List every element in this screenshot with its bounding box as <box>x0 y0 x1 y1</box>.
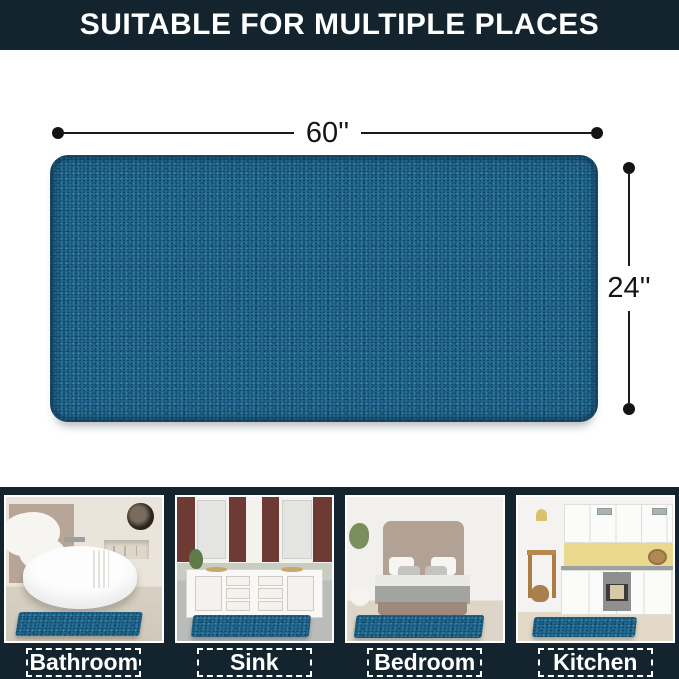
cabinet-drawer <box>258 576 282 586</box>
vanity-cabinet <box>186 569 323 618</box>
cabinet-drawer <box>226 588 250 598</box>
width-dimension: 60'' <box>52 115 603 151</box>
blanket <box>375 586 470 603</box>
banner: SUITABLE FOR MULTIPLE PLACES <box>0 0 679 50</box>
gallery-item-bathroom: Bathroom <box>4 495 164 679</box>
cabinet-drawer <box>258 601 282 611</box>
bathroom-photo <box>4 495 164 643</box>
dimension-line <box>628 311 630 403</box>
glass-cabinet-door <box>597 508 612 515</box>
cabinet-door <box>195 576 222 612</box>
cabinet-drawer <box>226 576 250 586</box>
sink-basin <box>281 567 303 572</box>
table-leg <box>552 555 556 598</box>
bedroom-label: Bedroom <box>367 648 482 677</box>
dimension-endpoint-dot <box>591 127 603 139</box>
rug-dimension-stage: 60'' 24'' <box>0 50 679 487</box>
vanity-mirror <box>282 500 312 559</box>
banner-title: SUITABLE FOR MULTIPLE PLACES <box>80 8 600 42</box>
cabinet-door <box>287 576 314 612</box>
height-dimension: 24'' <box>601 162 657 415</box>
sink-basin <box>206 567 228 572</box>
cabinet-drawer <box>226 601 250 611</box>
gallery-item-bedroom: Bedroom <box>345 495 505 679</box>
height-label: 24'' <box>607 266 650 311</box>
toiletry-bottle <box>136 546 138 556</box>
dimension-endpoint-dot <box>52 127 64 139</box>
pouf <box>350 586 370 606</box>
round-mirror <box>127 503 153 530</box>
gallery-item-kitchen: Kitchen <box>516 495 676 679</box>
gallery-item-sink: Sink <box>175 495 335 679</box>
curtain <box>262 497 279 562</box>
dimension-line <box>628 174 630 266</box>
kitchen-label: Kitchen <box>538 648 653 677</box>
toiletry-bottle <box>124 546 126 556</box>
cabinet-drawer <box>258 588 282 598</box>
wooden-tray <box>648 549 667 565</box>
sink-label: Sink <box>197 648 312 677</box>
towel <box>90 550 109 588</box>
dimension-endpoint-dot <box>623 162 635 174</box>
kitchen-photo <box>516 495 676 643</box>
oven <box>603 572 631 611</box>
bedroom-photo <box>345 495 505 643</box>
rug-photo <box>50 155 598 422</box>
width-label: 60'' <box>294 119 361 148</box>
flower-vase <box>189 549 203 569</box>
wall-faucet <box>64 537 86 541</box>
pendant-light <box>536 509 547 522</box>
vanity-mirror <box>197 500 227 559</box>
rug-in-kitchen <box>532 617 637 637</box>
curtain <box>313 497 332 562</box>
oven-towel <box>610 585 624 599</box>
bathtub <box>23 546 137 609</box>
sink-photo <box>175 495 335 643</box>
rug-at-foot-of-bed <box>353 615 483 638</box>
dimension-line <box>64 132 294 134</box>
product-infographic: SUITABLE FOR MULTIPLE PLACES 60'' 24'' <box>0 0 679 679</box>
rug-in-front-of-sink <box>191 615 311 637</box>
dimension-endpoint-dot <box>623 403 635 415</box>
upper-cabinets <box>564 504 673 543</box>
rug-in-bathroom <box>15 612 143 636</box>
plant <box>349 523 369 549</box>
basket <box>531 585 548 602</box>
bathroom-label: Bathroom <box>26 648 141 677</box>
bed-base <box>378 602 467 615</box>
dimension-line <box>361 132 591 134</box>
curtain <box>229 497 246 562</box>
gallery: Bathroom <box>0 487 679 679</box>
glass-cabinet-door <box>652 508 667 515</box>
